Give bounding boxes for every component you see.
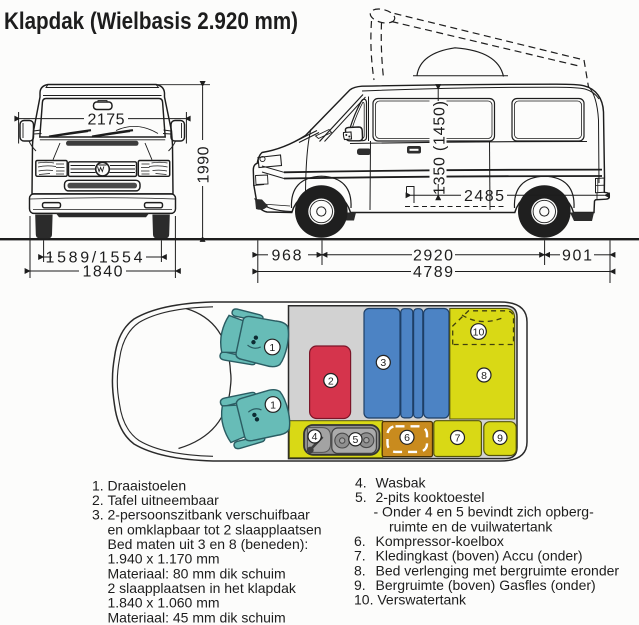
svg-text:en omklapbaar tot 2 slaapplaat: en omklapbaar tot 2 slaapplaatsen [108, 521, 322, 537]
svg-text:Bed verlenging met bergruimte: Bed verlenging met bergruimte eronder [376, 562, 620, 578]
svg-text:8.: 8. [354, 562, 366, 578]
svg-text:7: 7 [455, 432, 461, 444]
svg-text:968: 968 [272, 247, 302, 264]
svg-text:ruimte en de vuilwatertank: ruimte en de vuilwatertank [389, 518, 553, 534]
svg-text:10: 10 [473, 326, 485, 338]
svg-text:5.: 5. [355, 489, 367, 505]
svg-text:9: 9 [497, 432, 503, 444]
svg-text:Klapdak (Wielbasis 2.920 mm): Klapdak (Wielbasis 2.920 mm) [4, 8, 298, 35]
svg-text:4: 4 [312, 431, 318, 443]
svg-text:9.: 9. [354, 577, 366, 593]
svg-text:10. Verswatertank: 10. Verswatertank [354, 592, 467, 608]
svg-text:6.: 6. [354, 533, 366, 549]
svg-text:2 slaapplaatsen in het klapdak: 2 slaapplaatsen in het klapdak [108, 580, 297, 596]
svg-text:2175: 2175 [88, 112, 125, 129]
svg-text:Bergruimte (boven) Gasfles (on: Bergruimte (boven) Gasfles (onder) [376, 577, 596, 593]
svg-text:Materiaal: 45 mm dik schuim: Materiaal: 45 mm dik schuim [108, 609, 286, 625]
svg-text:1990: 1990 [195, 146, 212, 183]
svg-text:1.940 x 1.170 mm: 1.940 x 1.170 mm [108, 551, 220, 567]
svg-text:3: 3 [380, 357, 386, 369]
svg-text:1.: 1. [92, 477, 104, 493]
svg-text:2485: 2485 [464, 188, 504, 205]
svg-text:Bed maten uit 3 en 8 (beneden): Bed maten uit 3 en 8 (beneden): [108, 536, 309, 552]
svg-text:6: 6 [404, 432, 410, 444]
svg-text:Wasbak: Wasbak [376, 474, 427, 490]
svg-text:2-persoonszitbank verschuifbaa: 2-persoonszitbank verschuifbaar [108, 507, 311, 523]
svg-text:Tafel uitneembaar: Tafel uitneembaar [108, 492, 220, 508]
svg-text:1350 (1450): 1350 (1450) [431, 101, 448, 195]
svg-text:Kledingkast (boven) Accu (onde: Kledingkast (boven) Accu (onder) [376, 548, 583, 564]
svg-text:2920: 2920 [413, 247, 453, 264]
svg-text:- Onder 4 en 5 bevindt zich op: - Onder 4 en 5 bevindt zich opberg- [374, 504, 595, 520]
svg-text:1840: 1840 [83, 264, 123, 281]
svg-text:4789: 4789 [413, 264, 453, 281]
svg-text:2.: 2. [92, 492, 104, 508]
svg-text:4.: 4. [355, 474, 367, 490]
svg-text:2: 2 [328, 375, 334, 387]
svg-text:2-pits kooktoestel: 2-pits kooktoestel [376, 489, 485, 505]
svg-text:3.: 3. [92, 507, 104, 523]
svg-text:Kompressor-koelbox: Kompressor-koelbox [376, 533, 504, 549]
svg-text:901: 901 [562, 247, 592, 264]
svg-text:8: 8 [481, 370, 487, 382]
svg-text:1.840 x 1.060 mm: 1.840 x 1.060 mm [108, 595, 220, 611]
svg-text:1: 1 [269, 342, 275, 354]
svg-text:7.: 7. [354, 548, 366, 564]
svg-text:5: 5 [352, 434, 358, 446]
svg-text:1: 1 [270, 399, 276, 411]
svg-text:Materiaal: 80 mm dik schuim: Materiaal: 80 mm dik schuim [108, 565, 286, 581]
svg-text:Draaistoelen: Draaistoelen [108, 477, 187, 493]
